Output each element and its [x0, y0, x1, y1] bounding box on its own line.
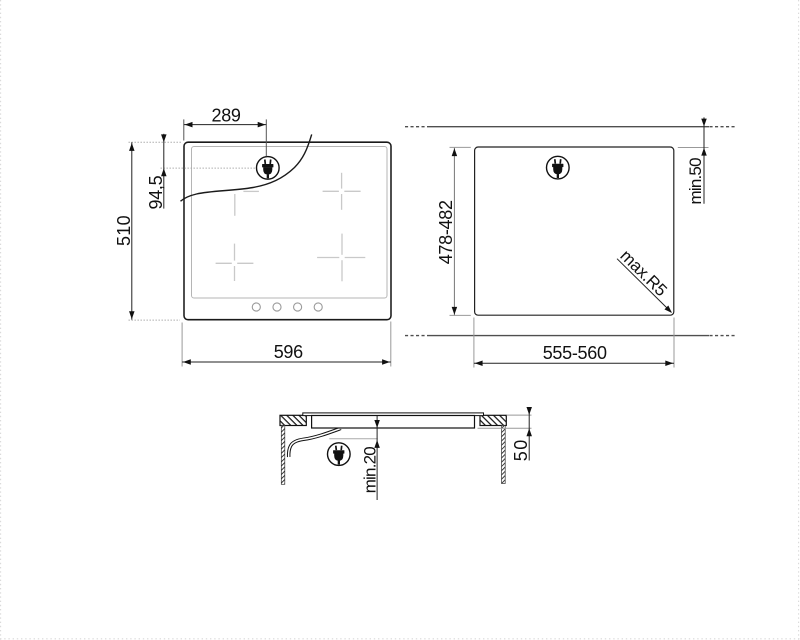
svg-text:596: 596 — [274, 342, 303, 362]
svg-text:478-482: 478-482 — [436, 200, 456, 264]
svg-text:50: 50 — [511, 438, 531, 461]
svg-text:555-560: 555-560 — [543, 343, 607, 363]
svg-text:min.20: min.20 — [361, 447, 380, 494]
svg-text:510: 510 — [114, 215, 134, 246]
svg-text:289: 289 — [212, 106, 241, 126]
svg-text:94,5: 94,5 — [146, 175, 166, 209]
svg-text:min.50: min.50 — [686, 158, 705, 205]
